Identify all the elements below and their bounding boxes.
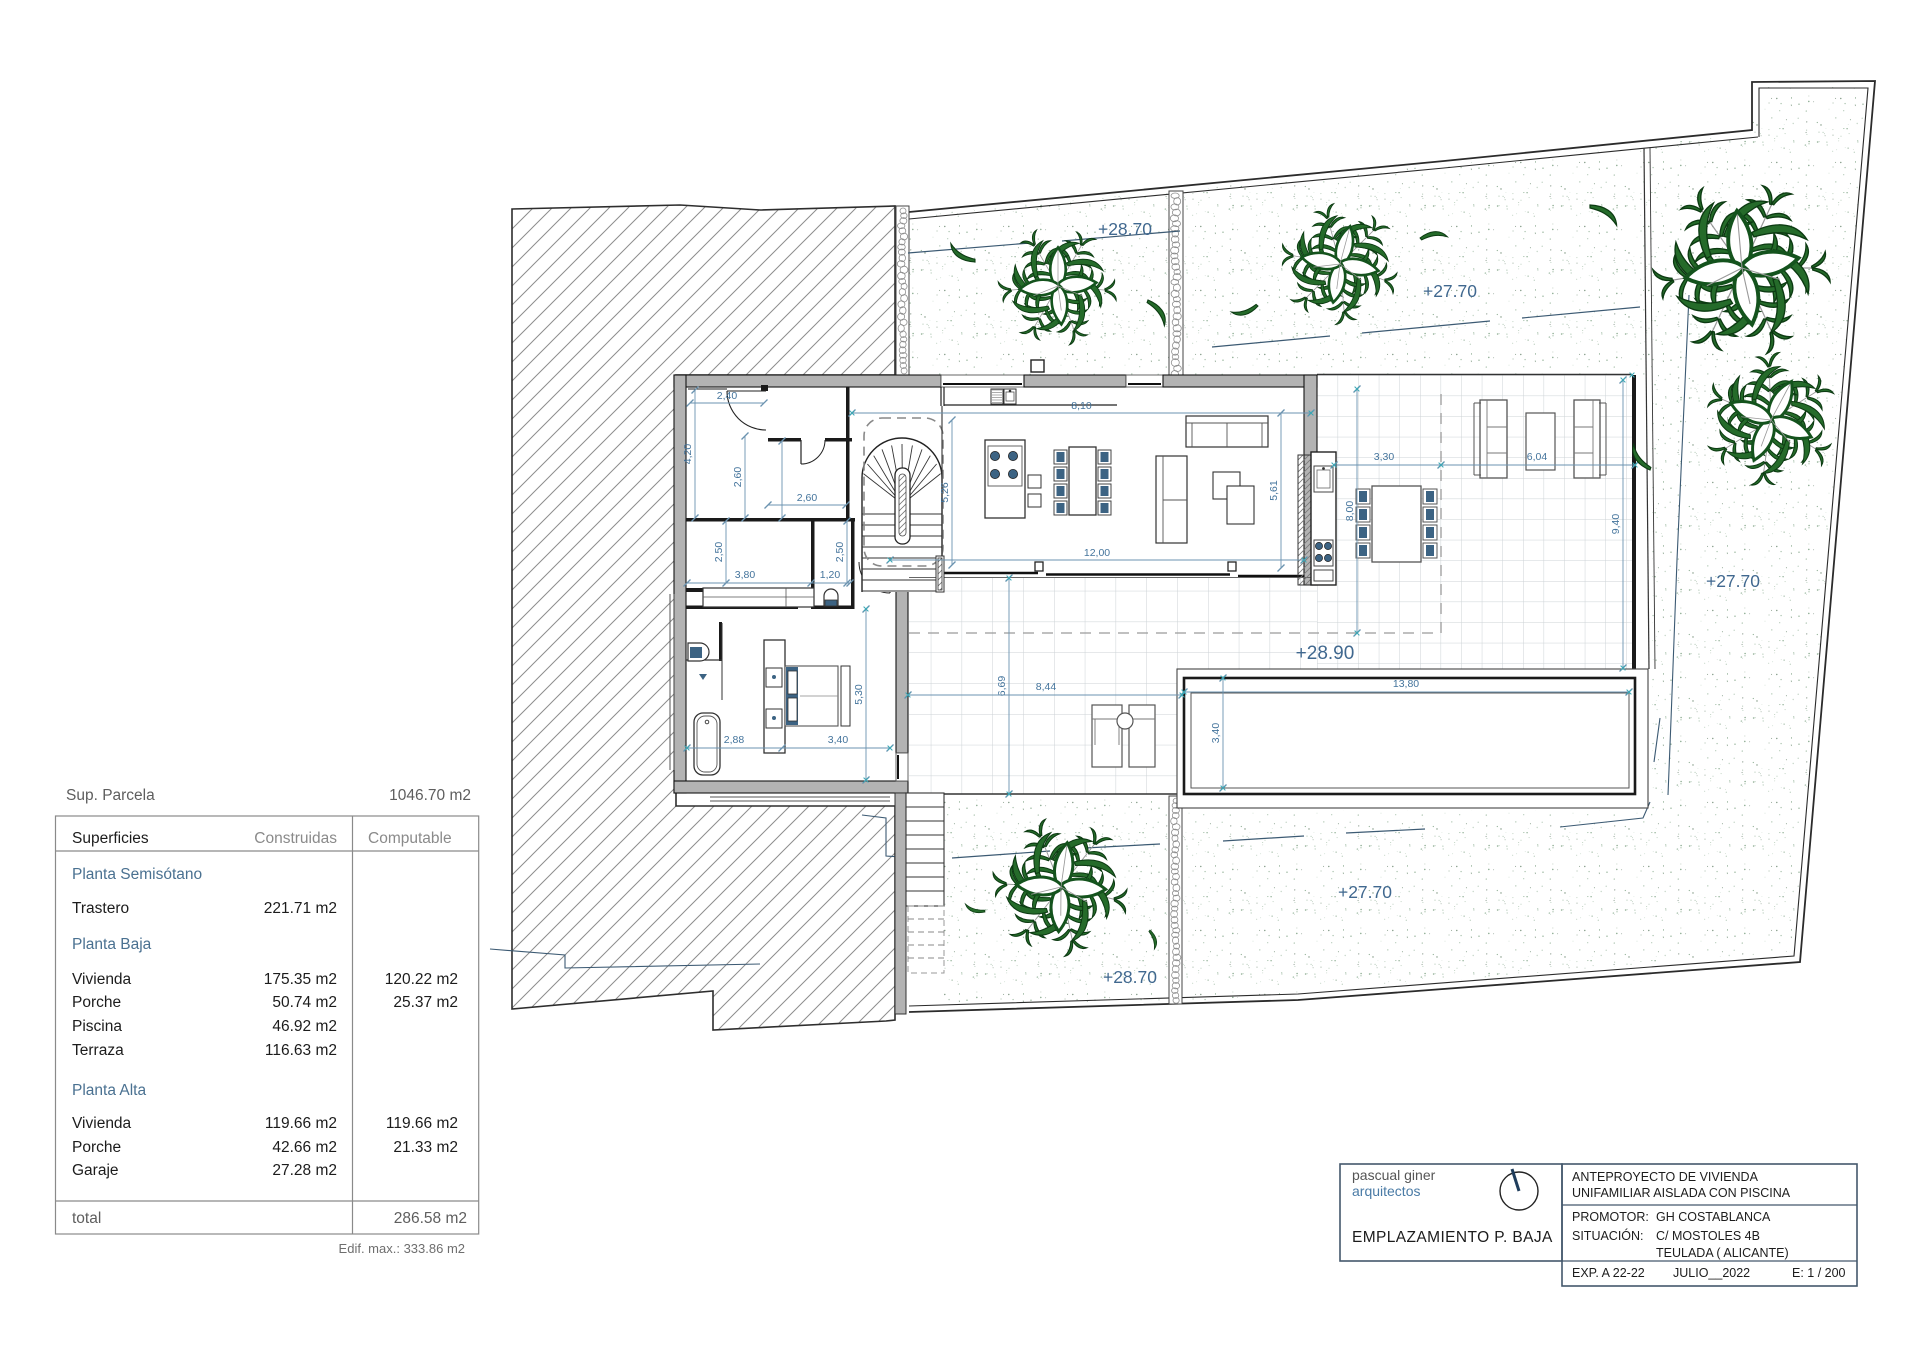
svg-text:21.33 m2: 21.33 m2 xyxy=(393,1139,458,1156)
svg-text:total: total xyxy=(72,1210,101,1227)
svg-text:5,61: 5,61 xyxy=(1268,480,1280,501)
svg-text:2,50: 2,50 xyxy=(834,542,846,563)
svg-text:Terraza: Terraza xyxy=(72,1042,124,1059)
svg-text:Edif. max.: 333.86 m2: Edif. max.: 333.86 m2 xyxy=(339,1241,465,1256)
svg-text:6,69: 6,69 xyxy=(996,676,1008,697)
svg-text:3,40: 3,40 xyxy=(828,734,849,746)
svg-text:PROMOTOR:: PROMOTOR: xyxy=(1572,1210,1649,1224)
svg-text:27.28 m2: 27.28 m2 xyxy=(272,1162,337,1179)
svg-text:TEULADA ( ALICANTE): TEULADA ( ALICANTE) xyxy=(1656,1246,1789,1260)
svg-text:Construidas: Construidas xyxy=(254,830,337,847)
svg-text:8,44: 8,44 xyxy=(1036,681,1057,693)
svg-text:3,30: 3,30 xyxy=(1374,451,1395,463)
svg-text:8,00: 8,00 xyxy=(1344,501,1356,522)
svg-text:2,60: 2,60 xyxy=(797,492,818,504)
svg-text:42.66 m2: 42.66 m2 xyxy=(272,1139,337,1156)
svg-text:+28.70: +28.70 xyxy=(1098,219,1152,239)
svg-text:4,20: 4,20 xyxy=(682,444,694,465)
svg-text:JULIO__2022: JULIO__2022 xyxy=(1673,1266,1750,1280)
svg-text:2,88: 2,88 xyxy=(724,734,745,746)
svg-text:1,20: 1,20 xyxy=(820,569,841,581)
svg-text:UNIFAMILIAR AISLADA CON PISCIN: UNIFAMILIAR AISLADA CON PISCINA xyxy=(1572,1186,1791,1200)
svg-text:+28.90: +28.90 xyxy=(1296,643,1355,664)
svg-text:GH COSTABLANCA: GH COSTABLANCA xyxy=(1656,1210,1771,1224)
svg-text:Porche: Porche xyxy=(72,1139,121,1156)
svg-text:12,00: 12,00 xyxy=(1084,547,1110,559)
svg-text:Vivienda: Vivienda xyxy=(72,1115,132,1132)
svg-text:E: 1 / 200: E: 1 / 200 xyxy=(1792,1266,1846,1280)
svg-text:119.66 m2: 119.66 m2 xyxy=(265,1115,337,1132)
svg-text:+27.70: +27.70 xyxy=(1706,571,1760,591)
svg-text:116.63 m2: 116.63 m2 xyxy=(265,1042,337,1059)
svg-text:286.58 m2: 286.58 m2 xyxy=(394,1210,467,1227)
svg-text:Planta Alta: Planta Alta xyxy=(72,1082,146,1099)
svg-text:2,50: 2,50 xyxy=(713,542,725,563)
svg-text:3,40: 3,40 xyxy=(1210,723,1222,744)
svg-text:+27.70: +27.70 xyxy=(1338,882,1392,902)
svg-text:3,80: 3,80 xyxy=(735,569,756,581)
svg-text:Superficies: Superficies xyxy=(72,830,149,847)
svg-text:arquitectos: arquitectos xyxy=(1352,1183,1420,1199)
svg-text:Planta Semisótano: Planta Semisótano xyxy=(72,866,202,883)
svg-text:Porche: Porche xyxy=(72,994,121,1011)
svg-text:EMPLAZAMIENTO P. BAJA: EMPLAZAMIENTO P. BAJA xyxy=(1352,1229,1553,1246)
svg-text:+28.70: +28.70 xyxy=(1103,967,1157,987)
svg-text:EXP. A 22-22: EXP. A 22-22 xyxy=(1572,1266,1645,1280)
svg-text:6,04: 6,04 xyxy=(1527,451,1548,463)
svg-text:2,40: 2,40 xyxy=(717,390,738,402)
svg-text:Sup. Parcela: Sup. Parcela xyxy=(66,787,155,804)
svg-text:5,26: 5,26 xyxy=(939,482,951,503)
svg-text:Garaje: Garaje xyxy=(72,1162,119,1179)
svg-text:Piscina: Piscina xyxy=(72,1018,122,1035)
svg-text:25.37 m2: 25.37 m2 xyxy=(393,994,458,1011)
svg-text:pascual giner: pascual giner xyxy=(1352,1167,1436,1183)
svg-text:C/ MOSTOLES 4B: C/ MOSTOLES 4B xyxy=(1656,1229,1760,1243)
svg-text:Planta Baja: Planta Baja xyxy=(72,936,152,953)
svg-text:ANTEPROYECTO DE VIVIENDA: ANTEPROYECTO DE VIVIENDA xyxy=(1572,1170,1759,1184)
svg-text:8,10: 8,10 xyxy=(1071,400,1092,412)
svg-text:46.92 m2: 46.92 m2 xyxy=(272,1018,337,1035)
svg-text:Vivienda: Vivienda xyxy=(72,971,132,988)
svg-text:13,80: 13,80 xyxy=(1393,678,1419,690)
svg-text:2,60: 2,60 xyxy=(732,467,744,488)
svg-text:1046.70 m2: 1046.70 m2 xyxy=(389,787,471,804)
svg-text:120.22 m2: 120.22 m2 xyxy=(385,971,458,988)
svg-text:+27.70: +27.70 xyxy=(1423,281,1477,301)
svg-text:50.74 m2: 50.74 m2 xyxy=(272,994,337,1011)
svg-text:Computable: Computable xyxy=(368,830,452,847)
svg-text:Trastero: Trastero xyxy=(72,900,129,917)
svg-text:SITUACIÓN:: SITUACIÓN: xyxy=(1572,1228,1644,1243)
svg-text:5,30: 5,30 xyxy=(853,684,865,705)
svg-text:9,40: 9,40 xyxy=(1610,514,1622,535)
svg-text:119.66 m2: 119.66 m2 xyxy=(386,1115,458,1132)
svg-text:175.35 m2: 175.35 m2 xyxy=(264,971,337,988)
svg-text:221.71 m2: 221.71 m2 xyxy=(264,900,337,917)
